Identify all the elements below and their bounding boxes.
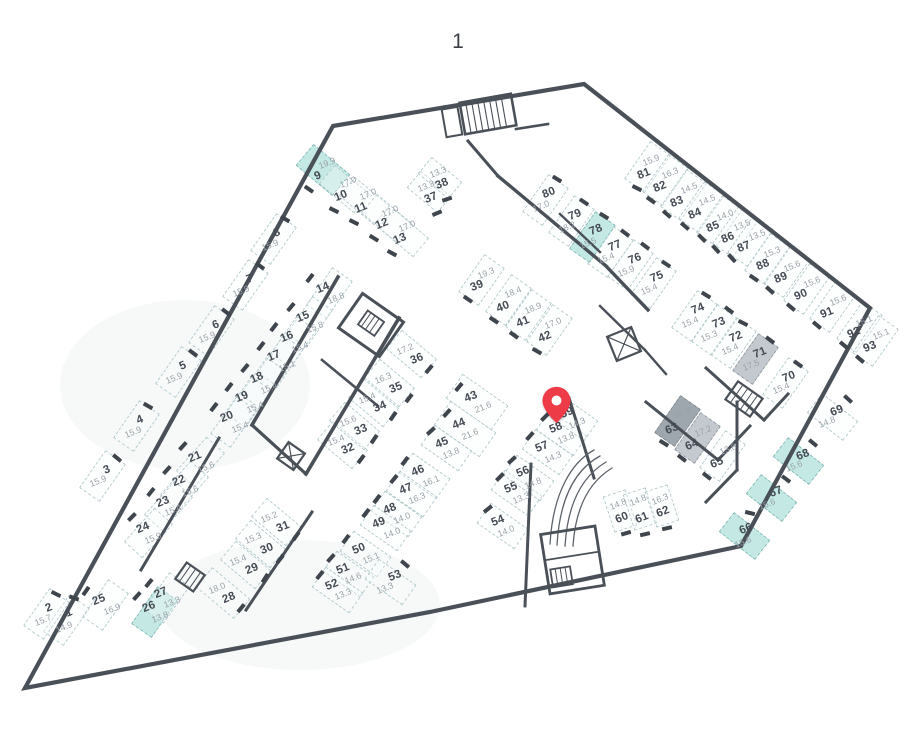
- stair-box-right: [725, 381, 762, 416]
- floor-plan[interactable]: 1 114.9215.7315.9415.9515.9615.9715.9815…: [0, 0, 899, 733]
- stair-box-left: [175, 562, 204, 591]
- walls-layer: [0, 0, 899, 733]
- elevator-shaft: [607, 327, 641, 361]
- floor-title: 1: [440, 30, 476, 54]
- elevator-shaft: [277, 442, 305, 470]
- location-pin-icon[interactable]: [540, 386, 573, 424]
